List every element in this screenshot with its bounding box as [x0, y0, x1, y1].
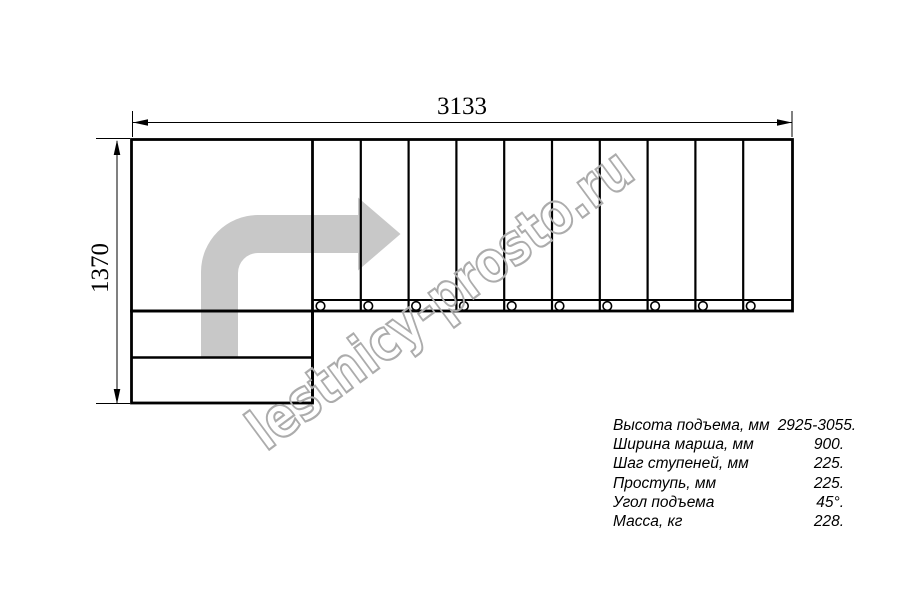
fastener-hole-icon [316, 302, 325, 311]
spec-row: Угол подъема 45°. [613, 493, 844, 512]
spec-value: 225. [806, 454, 844, 473]
fastener-hole-icon [507, 302, 516, 311]
width-dimension-label: 3133 [437, 93, 487, 120]
staircase-drawing-page: 3133 1370 lestnicy-prosto.ru Высота подъ… [0, 0, 900, 600]
spec-value: 900. [806, 435, 844, 454]
spec-label: Масса, кг [613, 512, 682, 531]
spec-label: Высота подъема, мм [613, 416, 770, 435]
spec-label: Проступь, мм [613, 474, 716, 493]
spec-table: Высота подъема, мм 2925-3055. Ширина мар… [613, 416, 844, 531]
spec-value: 45°. [808, 493, 844, 512]
fastener-hole-icon [651, 302, 660, 311]
fastener-hole-icon [699, 302, 708, 311]
spec-row: Шаг ступеней, мм 225. [613, 454, 844, 473]
fastener-hole-icon [746, 302, 755, 311]
dim-arrowhead-down-icon [114, 389, 121, 404]
spec-value: 228. [806, 512, 844, 531]
dim-arrowhead-right-icon [777, 119, 792, 126]
dim-arrowhead-left-icon [133, 119, 148, 126]
height-dimension-label: 1370 [87, 243, 114, 293]
dim-arrowhead-up-icon [114, 140, 121, 155]
spec-label: Угол подъема [613, 493, 714, 512]
fastener-hole-icon [603, 302, 612, 311]
spec-row: Проступь, мм 225. [613, 474, 844, 493]
spec-label: Шаг ступеней, мм [613, 454, 749, 473]
spec-label: Ширина марша, мм [613, 435, 754, 454]
spec-row: Ширина марша, мм 900. [613, 435, 844, 454]
spec-value: 225. [806, 474, 844, 493]
fastener-hole-icon [555, 302, 564, 311]
spec-value: 2925-3055. [770, 416, 856, 435]
spec-row: Высота подъема, мм 2925-3055. [613, 416, 844, 435]
spec-row: Масса, кг 228. [613, 512, 844, 531]
